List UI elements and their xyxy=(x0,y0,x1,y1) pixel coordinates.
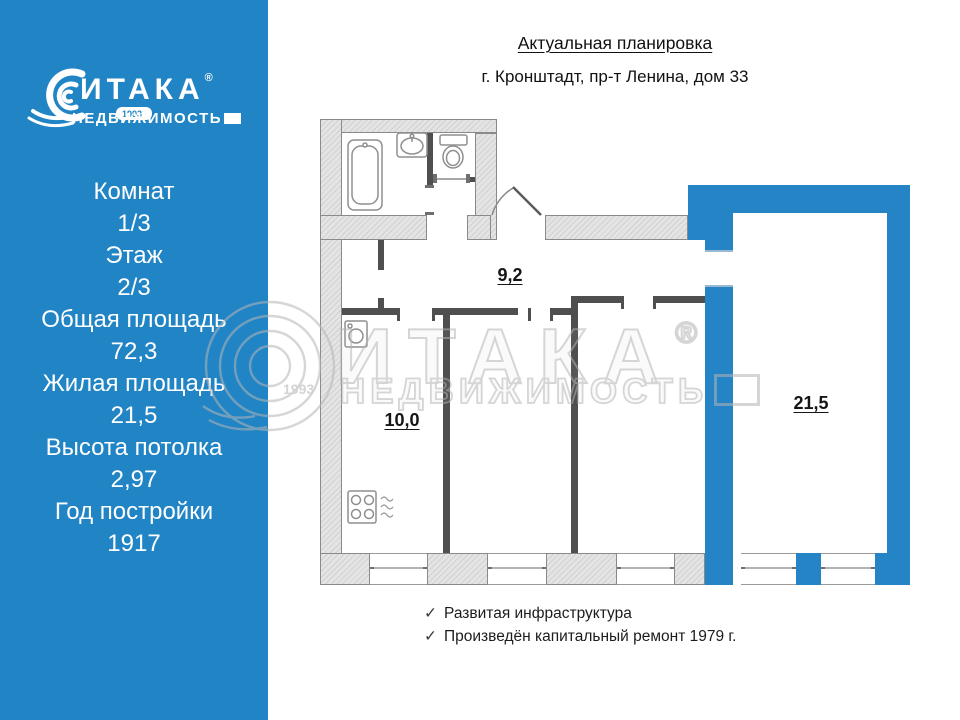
stat-total-area-label: Общая площадь xyxy=(0,304,268,336)
kitchen-area-label: 10,0 xyxy=(372,410,432,431)
page-subtitle: г. Кронштадт, пр-т Ленина, дом 33 xyxy=(420,67,810,87)
logo-registered-mark: ® xyxy=(205,72,213,84)
footer-item-text: Развитая инфраструктура xyxy=(444,605,632,622)
wc-door xyxy=(433,174,470,183)
stat-ceiling-label: Высота потолка xyxy=(0,432,268,464)
bath-sink-icon xyxy=(397,133,427,157)
stat-floor-value: 2/3 xyxy=(0,272,268,304)
footer-item-text: Произведён капитальный ремонт 1979 г. xyxy=(444,628,736,645)
bathtub-icon xyxy=(348,140,382,210)
logo-brand: ИТАКА® xyxy=(80,72,213,107)
floor-plan: 9,2 10,0 21,5 xyxy=(320,119,912,585)
hallway-area-label: 9,2 xyxy=(480,265,540,286)
stat-living-area-value: 21,5 xyxy=(0,400,268,432)
logo-underline-bar xyxy=(224,113,241,124)
check-icon: ✓ xyxy=(424,605,437,622)
watermark-year: 1993 xyxy=(283,381,314,397)
stat-rooms-value: 1/3 xyxy=(0,208,268,240)
footer-item-renovation: ✓Произведён капитальный ремонт 1979 г. xyxy=(424,627,736,646)
stove-icon xyxy=(348,491,376,523)
logo-sub-brand: НЕДВИЖИМОСТЬ xyxy=(72,110,222,127)
stat-rooms-label: Комнат xyxy=(0,176,268,208)
bathroom-door xyxy=(425,185,434,215)
stat-ceiling-value: 2,97 xyxy=(0,464,268,496)
check-icon: ✓ xyxy=(424,628,437,645)
kitchen-sink-icon xyxy=(345,321,367,347)
itaka-logo: 1993 ИТАКА® НЕДВИЖИМОСТЬ xyxy=(26,66,246,132)
property-stats: Комнат 1/3 Этаж 2/3 Общая площадь 72,3 Ж… xyxy=(0,176,268,560)
logo-brand-text: ИТАКА xyxy=(80,73,205,106)
footer-item-infrastructure: ✓Развитая инфраструктура xyxy=(424,604,632,623)
stat-living-area-label: Жилая площадь xyxy=(0,368,268,400)
heat-squiggle-icon xyxy=(381,497,393,517)
living-room-area-label: 21,5 xyxy=(781,393,841,414)
fixtures-layer xyxy=(320,119,912,585)
flyer-page: { "sidebar": { "logo": { "brand": "ИТАКА… xyxy=(0,0,960,720)
toilet-icon xyxy=(440,135,467,168)
stat-year-value: 1917 xyxy=(0,528,268,560)
page-title: Актуальная планировка xyxy=(460,33,770,54)
stat-floor-label: Этаж xyxy=(0,240,268,272)
stat-year-label: Год постройки xyxy=(0,496,268,528)
entrance-door-arc xyxy=(492,187,541,215)
sidebar: 1993 ИТАКА® НЕДВИЖИМОСТЬ Комнат 1/3 Этаж… xyxy=(0,0,268,720)
stat-total-area-value: 72,3 xyxy=(0,336,268,368)
